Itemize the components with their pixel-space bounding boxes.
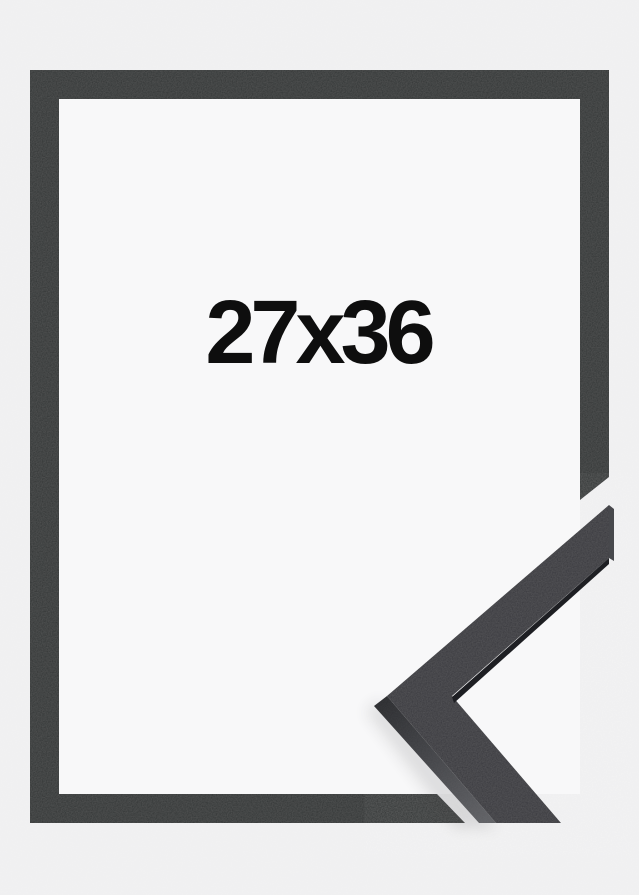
- mat-inner-area: [59, 99, 580, 794]
- frame-product-image: 27x36: [0, 0, 639, 895]
- product-photo-frame-27x36: 27x36: [0, 0, 639, 895]
- corner-sample-end-face: [609, 505, 614, 561]
- size-label: 27x36: [205, 283, 432, 383]
